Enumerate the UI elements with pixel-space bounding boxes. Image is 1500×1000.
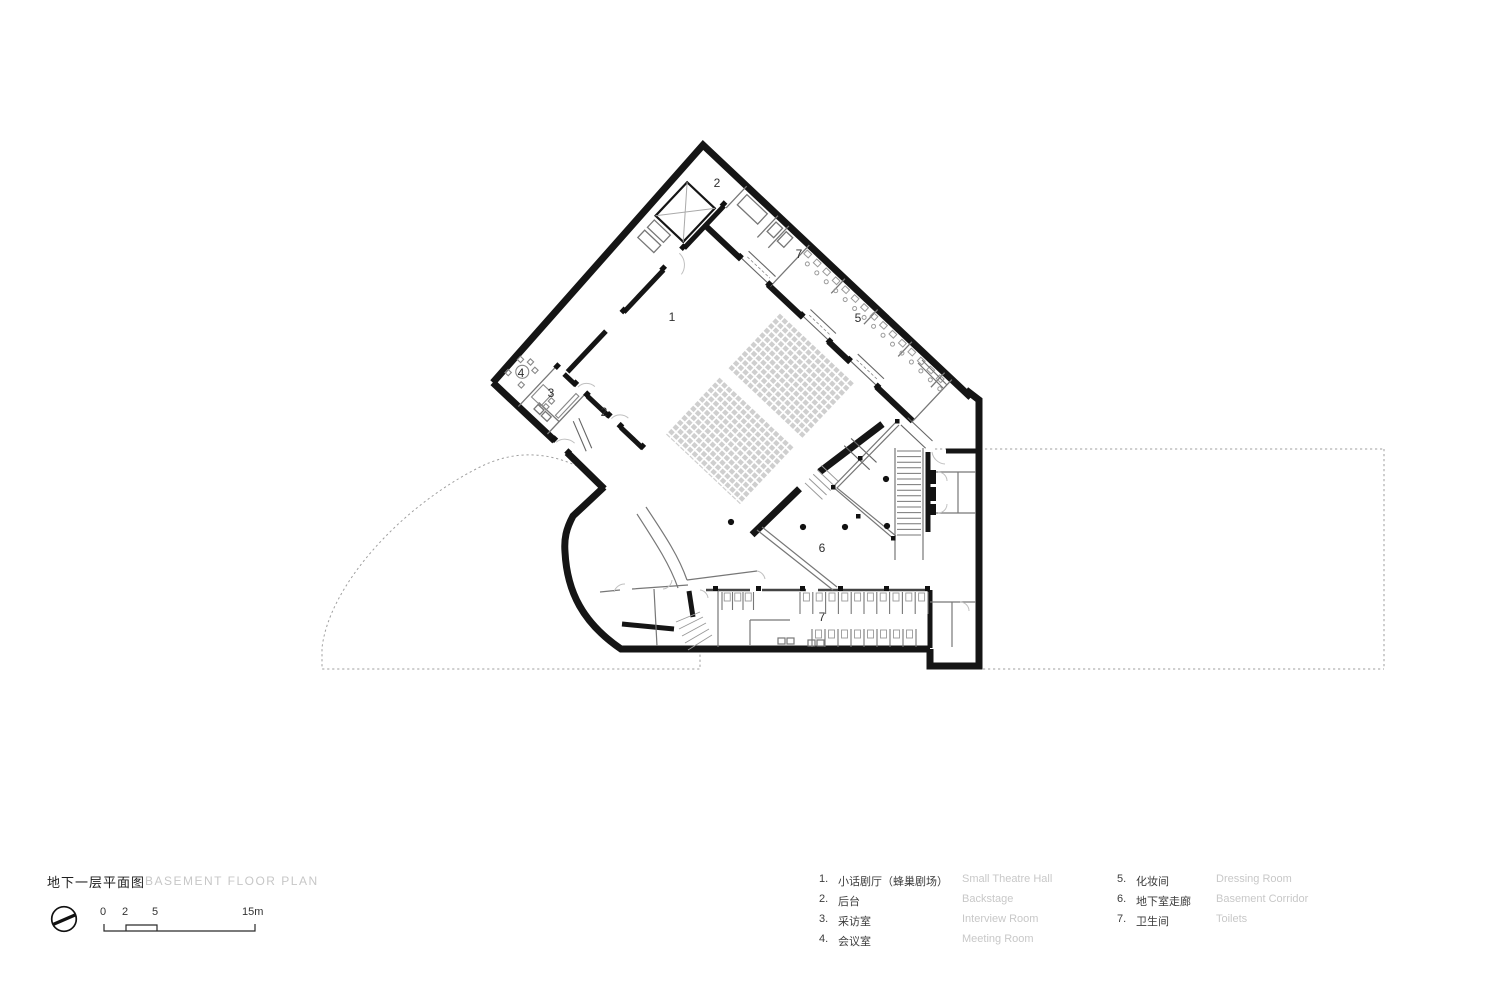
dressing-stool	[851, 295, 859, 303]
legend-row: 4.会议室Meeting Room	[819, 933, 1052, 953]
room-label-basement-corridor: 6	[819, 541, 826, 555]
door-jamb	[884, 586, 889, 591]
room-label-meeting-room: 4	[518, 366, 525, 380]
hall-corner-glazing	[757, 527, 837, 590]
mullion-dot	[891, 536, 896, 541]
floor-plan-drawing	[0, 0, 1500, 1000]
sheet-title-chinese: 地下一层平面图	[47, 872, 145, 891]
legend-label-zh: 采访室	[838, 913, 962, 929]
ramp-edge	[804, 317, 829, 341]
stool-seat	[880, 332, 886, 338]
legend-number: 7.	[1117, 913, 1136, 925]
door-jamb	[713, 586, 718, 591]
stool-seat	[871, 324, 877, 330]
structural-columns	[728, 476, 890, 530]
legend-number: 4.	[819, 933, 838, 945]
ramp-edge	[858, 354, 884, 379]
wc-fixture	[907, 630, 913, 638]
wc-fixture	[816, 593, 822, 601]
legend-row: 7.卫生间Toilets	[1117, 913, 1308, 933]
mullion-dot	[858, 456, 863, 461]
legend-number: 3.	[819, 913, 838, 925]
wc-fixture	[735, 593, 741, 601]
wc-fixture	[906, 593, 912, 601]
legend-row: 5.化妆间Dressing Room	[1117, 873, 1308, 893]
legend-number: 5.	[1117, 873, 1136, 885]
stool-seat	[833, 288, 839, 294]
theatre-outer-walls	[485, 145, 971, 629]
room-label-backstage-left: 2	[601, 405, 608, 419]
stool-seat	[823, 279, 829, 285]
legend-row: 3.采访室Interview Room	[819, 913, 1052, 933]
room-label-toilets: 7	[819, 610, 826, 624]
wc-fixture	[724, 593, 730, 601]
stool-seat	[918, 368, 924, 374]
wc-fixture	[881, 630, 887, 638]
wc-fixture	[880, 593, 886, 601]
mullion-dot	[831, 485, 836, 490]
legend-row: 1.小话剧厅（蜂巢剧场）Small Theatre Hall	[819, 873, 1052, 893]
dashed-fan-outline	[322, 455, 700, 669]
wc-fixture	[829, 630, 835, 638]
legend-number: 6.	[1117, 893, 1136, 905]
legend-label-zh: 地下室走廊	[1136, 893, 1216, 909]
room-label-band-toilet: 7	[796, 247, 803, 261]
ramp-edge	[851, 361, 877, 386]
stool-seat	[842, 297, 848, 303]
right-strip-fixtures	[930, 470, 936, 515]
wc-fixture	[842, 630, 848, 638]
legend-column-2: 5.化妆间Dressing Room6.地下室走廊Basement Corrid…	[1117, 873, 1308, 933]
legend-label-en: Small Theatre Hall	[962, 873, 1052, 885]
wc-fixture	[745, 593, 751, 601]
dressing-stool	[813, 259, 821, 267]
column-dot	[842, 524, 848, 530]
mullion-dot	[856, 514, 861, 519]
legend-label-en: Basement Corridor	[1216, 893, 1308, 905]
sheet-title-english: BASEMENT FLOOR PLAN	[145, 874, 319, 888]
stool-seat	[890, 341, 896, 347]
theatre-seating-rows	[668, 315, 852, 502]
scale-bar	[104, 924, 255, 931]
ramp-edge	[742, 258, 769, 283]
stool-seat	[805, 261, 811, 267]
stair-shaft-walls	[895, 448, 923, 560]
legend-label-en: Toilets	[1216, 913, 1247, 925]
wc-fixture	[842, 593, 848, 601]
stool-seat	[909, 359, 915, 365]
door-jamb	[800, 586, 805, 591]
wc-fixture	[893, 593, 899, 601]
main-stair-treads	[897, 451, 921, 535]
legend-label-zh: 会议室	[838, 933, 962, 949]
dressing-stool	[823, 268, 831, 276]
room-label-dressing-rooms: 5	[855, 311, 862, 325]
mullion-dot	[895, 419, 900, 424]
legend-label-en: Interview Room	[962, 913, 1038, 925]
legend-number: 1.	[819, 873, 838, 885]
legend-label-en: Backstage	[962, 893, 1013, 905]
wc-fixture	[855, 593, 861, 601]
ramp-edge	[749, 251, 776, 276]
wc-fixture	[855, 630, 861, 638]
dressing-stool	[898, 339, 906, 347]
legend-label-en: Meeting Room	[962, 933, 1034, 945]
north-compass-icon	[48, 903, 82, 937]
legend-row: 2.后台Backstage	[819, 893, 1052, 913]
legend-label-zh: 后台	[838, 893, 962, 909]
column-dot	[883, 476, 889, 482]
room-label-small-theatre-hall: 1	[669, 310, 676, 324]
wc-fixture	[867, 593, 873, 601]
wc-fixture	[803, 593, 809, 601]
wc-fixture	[816, 630, 822, 638]
legend-label-zh: 卫生间	[1136, 913, 1216, 929]
column-dot	[884, 523, 890, 529]
dressing-stool	[908, 348, 916, 356]
lobby-glazing	[637, 507, 757, 588]
wc-fixture	[829, 593, 835, 601]
scale-label-2: 2	[122, 906, 128, 918]
door-jamb	[838, 586, 843, 591]
legend-label-en: Dressing Room	[1216, 873, 1292, 885]
door-jamb	[756, 586, 761, 591]
column-dot	[800, 524, 806, 530]
dressing-stool	[861, 304, 869, 312]
dashed-site-outlines	[322, 449, 1384, 669]
room-label-backstage-top: 2	[714, 176, 721, 190]
legend-column-1: 1.小话剧厅（蜂巢剧场）Small Theatre Hall2.后台Backst…	[819, 873, 1052, 953]
wc-fixture	[919, 593, 925, 601]
legend-number: 2.	[819, 893, 838, 905]
wc-fixture	[868, 630, 874, 638]
legend-label-zh: 化妆间	[1136, 873, 1216, 889]
legend-label-zh: 小话剧厅（蜂巢剧场）	[838, 873, 962, 889]
stool-seat	[861, 315, 867, 321]
scale-label-5: 5	[152, 906, 158, 918]
column-dot	[728, 519, 734, 525]
scale-label-0: 0	[100, 906, 106, 918]
stool-seat	[814, 270, 820, 276]
room-label-interview-room: 3	[548, 386, 555, 400]
dressing-stool	[889, 330, 897, 338]
legend-row: 6.地下室走廊Basement Corridor	[1117, 893, 1308, 913]
fan-stair-lines	[676, 612, 712, 650]
door-jamb	[925, 586, 930, 591]
dressing-stool	[842, 286, 850, 294]
dressing-stool	[880, 321, 888, 329]
wc-fixture	[894, 630, 900, 638]
ramp-edge	[810, 309, 835, 333]
theatre-block	[484, 145, 972, 631]
dressing-stool	[804, 250, 812, 258]
basement-floor-plan-sheet: 127543267 地下一层平面图 BASEMENT FLOOR PLAN 0 …	[0, 0, 1500, 1000]
scale-label-15m: 15m	[242, 906, 263, 918]
door-swing-arcs-global	[614, 452, 969, 611]
dressing-stool	[832, 277, 840, 285]
dashed-right-extension	[935, 449, 1384, 669]
right-strip-walls	[930, 472, 976, 647]
